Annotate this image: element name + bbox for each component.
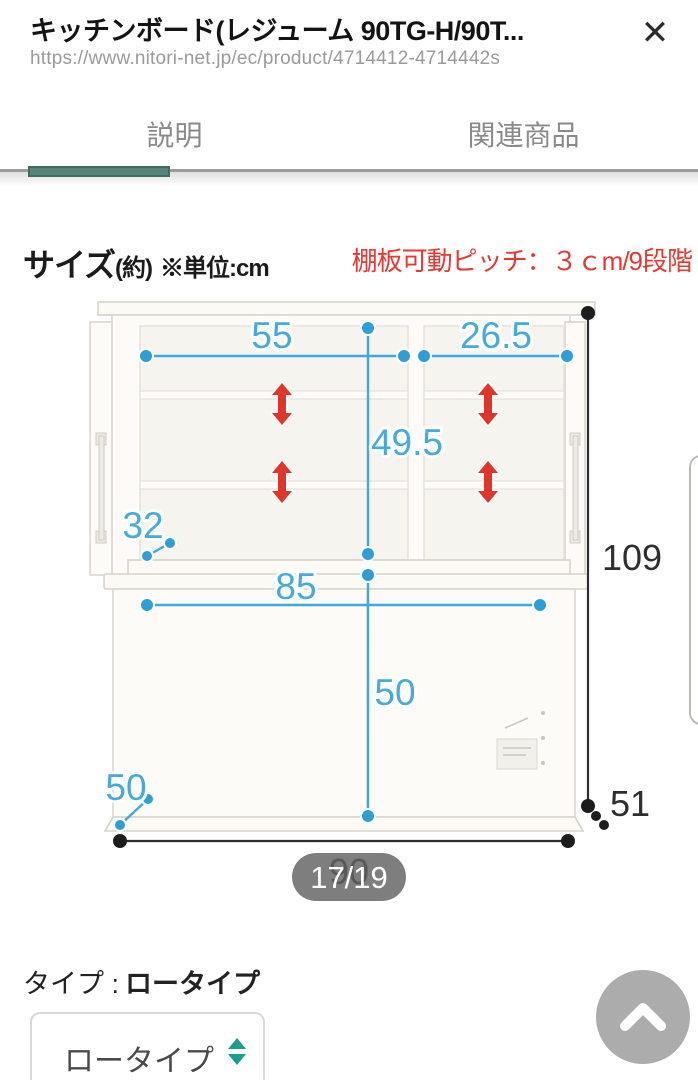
shelf-pitch-note: 棚板可動ピッチ：３ｃm/9段階: [352, 241, 692, 278]
chevron-up-icon: [596, 970, 690, 1064]
triangle-up-icon: [228, 1038, 246, 1049]
door-handle: [573, 436, 578, 540]
dimension-diagram-image: 55 26.5 49.5 32 85 50 50 109 90 51 17/19: [0, 298, 698, 918]
product-sticker: [497, 739, 537, 769]
counter-body: [113, 589, 575, 817]
page-title: キッチンボード(レジューム 90TG-H/90T...: [30, 9, 610, 48]
sticker-dot: [541, 761, 545, 765]
shelf-board: [424, 481, 564, 489]
type-select[interactable]: ロータイプ: [30, 1012, 265, 1080]
hutch-top-board: [98, 302, 595, 315]
page-url: https://www.nitori-net.jp/ec/product/471…: [30, 48, 500, 70]
type-label: タイプ :: [23, 969, 119, 999]
dim-upper-left-width: 55: [251, 315, 292, 356]
tab-description[interactable]: 説明: [0, 100, 349, 167]
hutch-right-opening: [424, 326, 564, 560]
sticker-dot: [541, 711, 545, 715]
active-tab-indicator: [28, 166, 170, 177]
close-icon[interactable]: ✕: [630, 8, 680, 58]
size-heading: サイズ(約)※単位:cm: [23, 240, 269, 286]
dim-upper-height: 49.5: [371, 422, 443, 463]
type-select-value: ロータイプ: [64, 1036, 214, 1080]
dim-counter-width: 85: [275, 566, 316, 607]
dim-upper-depth: 32: [122, 505, 163, 546]
product-page-overlay: キッチンボード(レジューム 90TG-H/90T... https://www.…: [0, 0, 698, 1080]
triangle-down-icon: [228, 1054, 246, 1065]
dim-total-height: 109: [602, 537, 662, 578]
type-label-row: タイプ :ロータイプ: [23, 962, 260, 1001]
select-updown-icon: [228, 1038, 246, 1065]
scroll-to-top-button[interactable]: [596, 970, 690, 1064]
size-unit-note: ※単位:cm: [160, 255, 269, 282]
image-pager-label: 17/19: [310, 860, 388, 895]
size-heading-approx: (約): [115, 255, 152, 282]
dim-upper-right-width: 26.5: [460, 315, 532, 356]
counter-top: [104, 574, 588, 589]
base-kickboard: [105, 817, 583, 831]
size-heading-main: サイズ: [23, 247, 115, 283]
header: キッチンボード(レジューム 90TG-H/90T... https://www.…: [0, 0, 698, 100]
dim-lower-height: 50: [374, 672, 415, 713]
door-handle: [99, 436, 104, 540]
dim-total-depth: 51: [610, 783, 650, 824]
side-tab-partial[interactable]: [689, 455, 698, 725]
sticker-dot: [541, 736, 545, 740]
tab-bar: 説明 関連商品: [0, 100, 698, 167]
tab-related[interactable]: 関連商品: [349, 100, 698, 167]
type-value: ロータイプ: [125, 969, 260, 999]
dim-lower-depth: 50: [105, 767, 146, 808]
